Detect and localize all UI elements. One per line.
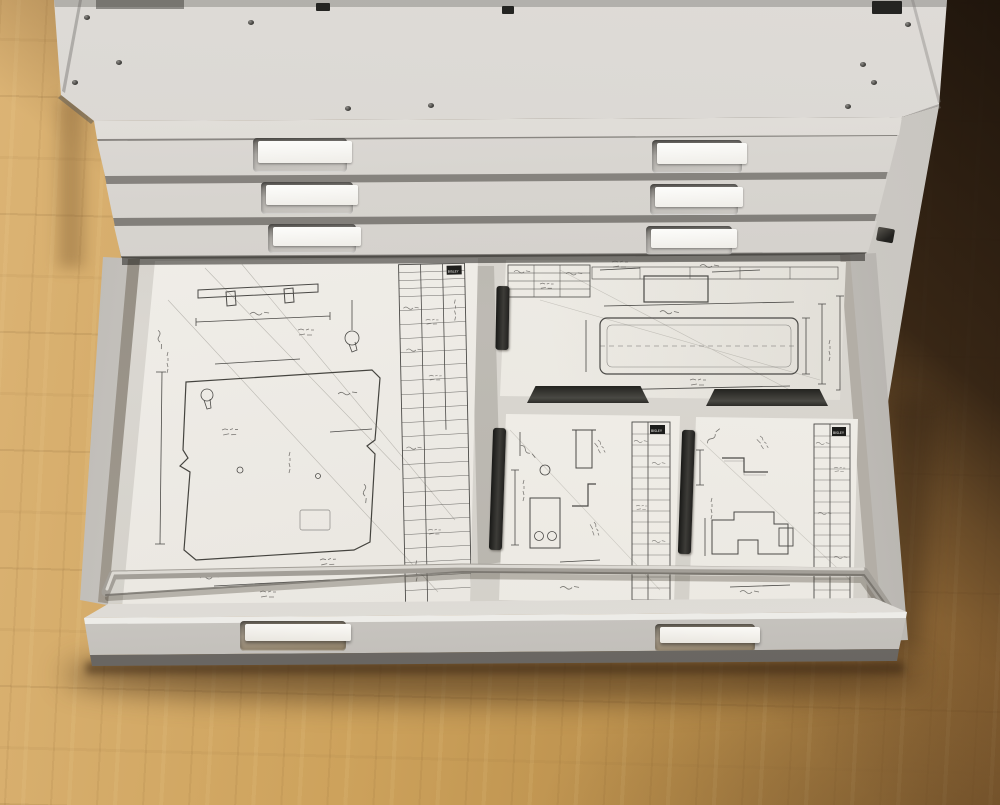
screw-head xyxy=(84,15,90,20)
retainer-clip-vertical xyxy=(495,286,509,350)
screw-head xyxy=(72,80,78,85)
retainer-clip-horizontal xyxy=(527,386,649,403)
screw-head xyxy=(860,62,866,67)
label-card xyxy=(660,627,760,643)
screw-head xyxy=(248,20,254,25)
screw-head xyxy=(428,103,434,108)
label-holder-handle xyxy=(261,182,353,214)
vent-slot xyxy=(316,3,330,11)
cabinet-left-contact-shadow xyxy=(58,98,84,268)
screw-head xyxy=(871,80,877,85)
cabinet-top-back-slot xyxy=(96,0,184,9)
screw-head xyxy=(905,22,911,27)
label-card xyxy=(266,185,358,205)
screw-head xyxy=(116,60,122,65)
label-holder-handle xyxy=(652,140,742,173)
label-card xyxy=(657,143,747,164)
label-holder-handle-open-drawer xyxy=(655,624,755,652)
label-card xyxy=(273,227,361,246)
label-holder-handle xyxy=(253,138,347,172)
screw-head xyxy=(345,106,351,111)
label-card xyxy=(245,624,351,641)
lock-plate xyxy=(876,227,895,244)
retainer-clip-horizontal xyxy=(706,389,828,406)
label-card xyxy=(655,187,743,207)
label-card xyxy=(258,141,352,163)
label-card xyxy=(651,229,737,248)
vent-slot xyxy=(502,6,514,14)
label-holder-handle xyxy=(646,226,732,255)
photo-flat-file-cabinet: BISLEY xyxy=(0,0,1000,805)
label-holder-handle xyxy=(650,184,738,215)
label-holder-handle xyxy=(268,224,356,253)
screw-head xyxy=(845,104,851,109)
label-holder-handle-open-drawer xyxy=(240,621,346,651)
vent-slot xyxy=(872,1,902,14)
